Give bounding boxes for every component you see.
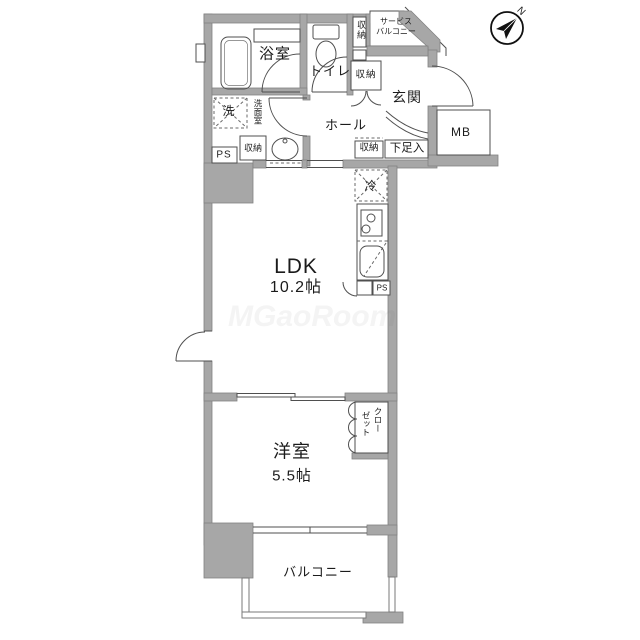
bathroom-label: 浴室 <box>259 45 291 62</box>
closet-label-line1: クロー <box>372 407 384 433</box>
kitchen-door-arc <box>343 282 357 296</box>
entrance-label: 玄関 <box>392 89 422 105</box>
pipe-space-kitchen-label: PS <box>377 283 388 292</box>
small-box <box>353 50 366 60</box>
entrance-door-arc <box>432 66 473 106</box>
storage-top-label: 収納 <box>355 20 368 40</box>
watermark: MGaoRoom <box>228 300 438 334</box>
western-room-name-label: 洋室 <box>273 442 311 463</box>
storage-entry-label: 収納 <box>355 71 376 82</box>
balcony-window <box>253 527 367 533</box>
bath-counter <box>254 29 300 42</box>
balcony-label: バルコニー <box>283 566 353 581</box>
refrigerator-label: 冷 <box>364 180 377 194</box>
ldk-name-label: LDK <box>274 255 318 279</box>
closet-label-line2: ゼット <box>360 411 372 437</box>
bathtub <box>221 37 251 89</box>
meter-box-label: MB <box>451 126 471 140</box>
washroom-label: 洗面室 <box>252 99 264 125</box>
sliding-door <box>237 394 345 401</box>
washroom-door-arc <box>269 98 307 136</box>
storage-hall-label: 収納 <box>359 144 378 155</box>
laundry-label: 洗 <box>222 105 235 119</box>
service-balcony-label: サービス バルコニー <box>368 17 424 37</box>
floorplan-page: MGaoRoom 浴室 トイレ 収納 サービス バルコニー 収納 玄関 ホール … <box>0 0 640 640</box>
western-room-size-label: 5.5帖 <box>272 467 312 484</box>
ldk-size-label: 10.2帖 <box>270 279 322 297</box>
toilet-fixture <box>313 25 339 67</box>
wall-niche <box>196 44 205 62</box>
ldk-side-door-arc <box>176 331 212 361</box>
washbasin <box>270 138 301 163</box>
pipe-space-washroom-label: PS <box>216 149 231 161</box>
kitchen-counter <box>357 204 388 280</box>
shoe-cabinet-label: 下足入 <box>390 142 425 155</box>
storage-washroom-label: 収納 <box>244 143 262 153</box>
entrance-step-lines <box>386 111 428 139</box>
storage-entry-door-arcs <box>351 91 381 106</box>
kitchen-small-box <box>357 281 372 295</box>
toilet-label: トイレ <box>309 65 351 80</box>
hall-label: ホール <box>325 119 367 134</box>
